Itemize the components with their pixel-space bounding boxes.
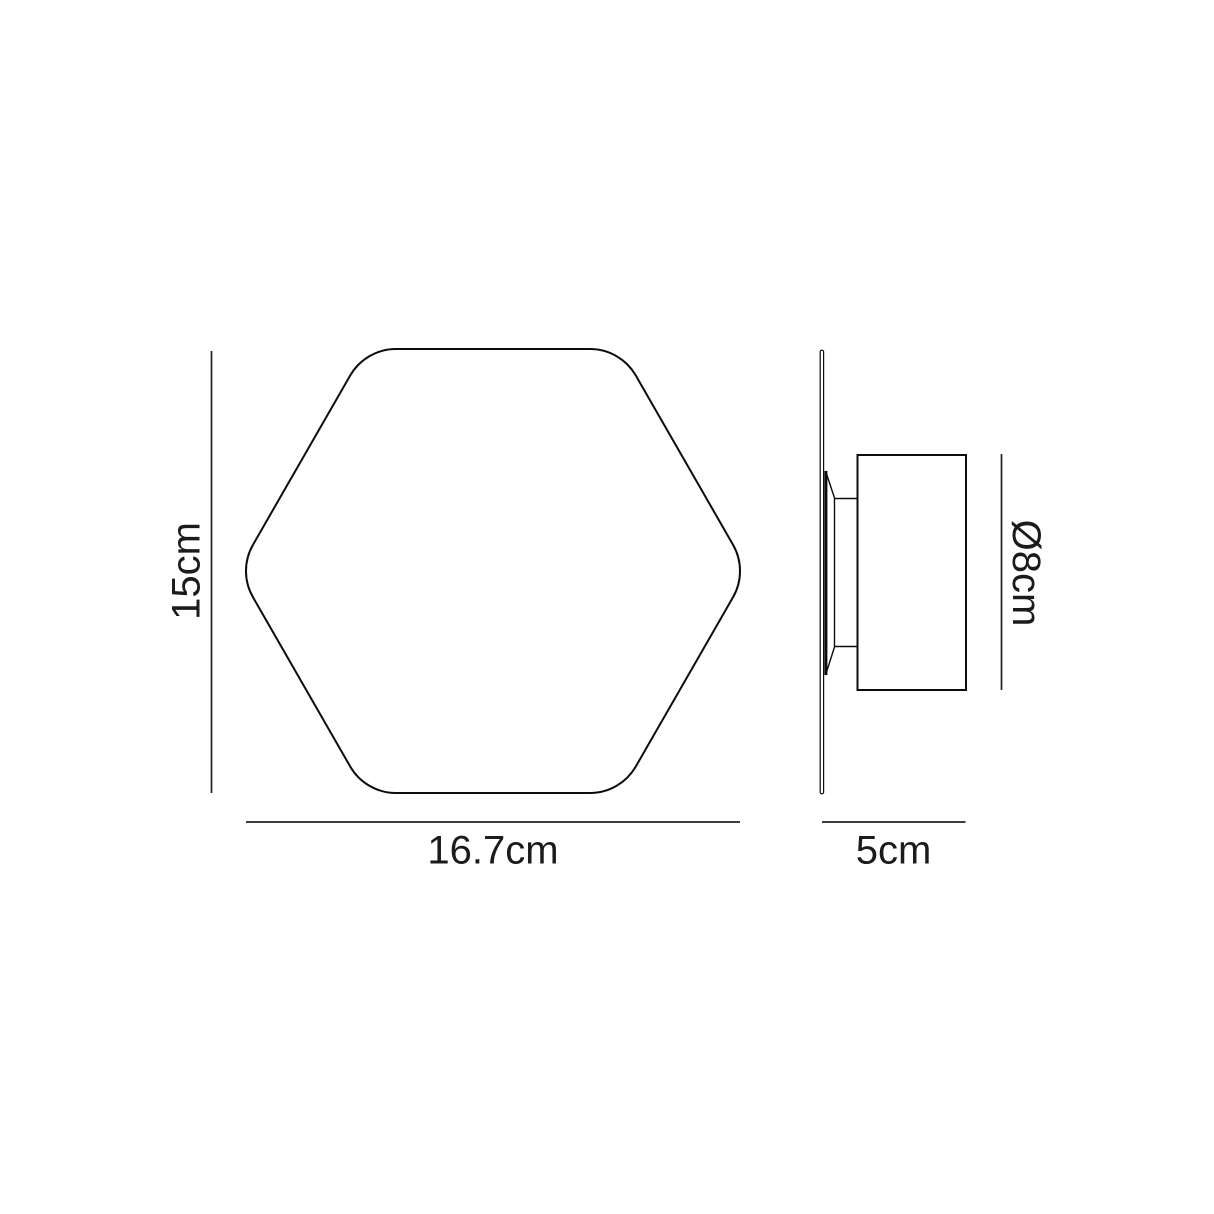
svg-text:16.7cm: 16.7cm bbox=[427, 829, 558, 873]
svg-text:15cm: 15cm bbox=[165, 522, 209, 620]
svg-text:Ø8cm: Ø8cm bbox=[1004, 520, 1048, 627]
svg-text:5cm: 5cm bbox=[856, 829, 932, 873]
